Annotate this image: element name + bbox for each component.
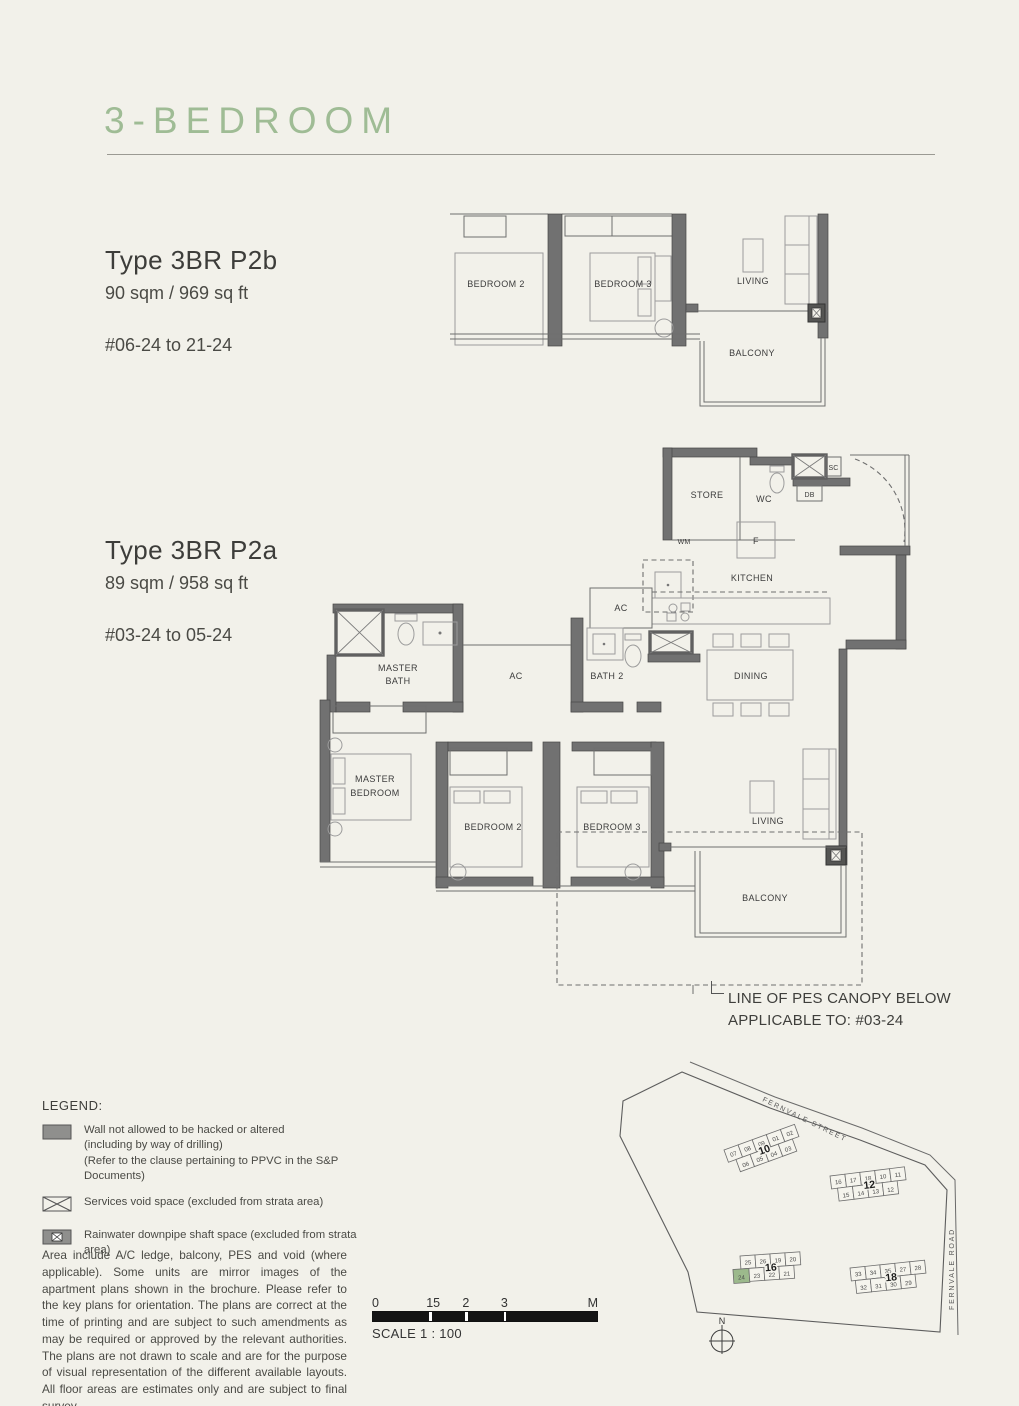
scale-tick-1: 15 (426, 1296, 440, 1310)
page-title: 3-BEDROOM (104, 100, 400, 142)
label-living: LIVING (752, 816, 784, 826)
washing-machine (643, 560, 693, 612)
pes-canopy-line (557, 832, 862, 994)
label-master-bath-1: MASTER (378, 663, 418, 673)
services-void-icon (42, 1196, 72, 1217)
type-p2a-area: 89 sqm / 958 sq ft (105, 573, 277, 594)
svg-text:33: 33 (855, 1272, 863, 1279)
scale-tick-m: M (588, 1296, 598, 1310)
label-ac-corridor: AC (509, 671, 522, 681)
type-p2b-units: #06-24 to 21-24 (105, 335, 277, 356)
bath2-basin (587, 628, 623, 660)
rainwater-downpipe-icon (808, 304, 825, 322)
bed-bedroom2 (450, 787, 522, 880)
svg-text:24: 24 (738, 1275, 746, 1281)
label-bedroom2: BEDROOM 2 (464, 822, 522, 832)
svg-text:FERNVALE ROAD: FERNVALE ROAD (949, 1228, 956, 1310)
label-bedroom3: BEDROOM 3 (594, 279, 652, 289)
type-p2a-name: Type 3BR P2a (105, 535, 277, 566)
label-master-bedroom-1: MASTER (355, 774, 395, 784)
pes-leader-bracket (711, 981, 724, 994)
svg-text:21: 21 (783, 1272, 791, 1278)
type-p2a-info: Type 3BR P2a 89 sqm / 958 sq ft #03-24 t… (105, 535, 277, 646)
scale-tick-2: 2 (462, 1296, 469, 1310)
block-number-12: 12 (863, 1179, 876, 1192)
pes-note-line1: LINE OF PES CANOPY BELOW (728, 988, 951, 1010)
svg-text:32: 32 (860, 1285, 868, 1292)
svg-text:23: 23 (753, 1274, 761, 1280)
sofa-living (785, 216, 817, 304)
svg-text:29: 29 (905, 1281, 913, 1288)
label-master-bath-2: BATH (386, 676, 411, 686)
block-number-16: 16 (765, 1261, 778, 1274)
north-label: N (719, 1316, 726, 1326)
label-fridge: F (753, 536, 759, 546)
legend-heading: LEGEND: (42, 1098, 372, 1113)
svg-text:34: 34 (870, 1270, 878, 1277)
site-block-18: 33 34 35 27 28 32 31 30 29 18 (850, 1260, 927, 1294)
label-bedroom3: BEDROOM 3 (583, 822, 641, 832)
svg-text:20: 20 (789, 1257, 797, 1263)
bed-master (328, 738, 411, 836)
wc-toilet (770, 466, 784, 493)
legend: LEGEND: Wall not allowed to be hacked or… (42, 1098, 372, 1270)
floor-plan-p2a: SC DB STORE WC WM F KITCHEN AC (315, 440, 915, 1003)
coffee-table (743, 239, 763, 272)
label-db: DB (804, 492, 814, 499)
scale-ticks: 0 15 2 3 M (372, 1296, 598, 1311)
bed-bedroom2 (455, 253, 543, 345)
services-void-box-bath2 (650, 632, 692, 653)
scale-tick-3: 3 (501, 1296, 508, 1310)
svg-text:27: 27 (899, 1267, 907, 1274)
master-bath-basin (423, 622, 457, 645)
type-p2b-info: Type 3BR P2b 90 sqm / 969 sq ft #06-24 t… (105, 245, 277, 356)
label-master-bedroom-2: BEDROOM (350, 788, 399, 798)
svg-text:31: 31 (875, 1284, 883, 1291)
wardrobe-hatch-bedroom3 (612, 216, 673, 236)
bath2-toilet (625, 634, 641, 667)
bench-bedroom3 (655, 256, 671, 301)
rainwater-downpipe-icon (826, 846, 846, 865)
label-store: STORE (691, 490, 724, 500)
legend-wall-line1: Wall not allowed to be hacked or altered (84, 1123, 372, 1138)
scale-caption: SCALE 1 : 100 (372, 1326, 598, 1341)
floor-plan-p2b: BEDROOM 2 BEDROOM 3 LIVING BALCONY (450, 196, 850, 436)
label-wc: WC (756, 494, 772, 504)
services-void-box-sc (793, 455, 826, 478)
label-balcony: BALCONY (742, 893, 788, 903)
road-edge (690, 1062, 958, 1335)
wardrobe-hatch-bedroom3 (594, 748, 651, 775)
sofa-living (803, 749, 836, 839)
label-kitchen: KITCHEN (731, 573, 773, 583)
label-dining: DINING (734, 671, 768, 681)
site-block-12: 16 17 18 10 11 15 14 13 12 12 (830, 1167, 908, 1202)
scale-tick-0: 0 (372, 1296, 379, 1310)
kitchen-counter (652, 592, 830, 624)
label-wm: WM (678, 539, 691, 546)
type-p2b-area: 90 sqm / 969 sq ft (105, 283, 277, 304)
label-sc: SC (828, 465, 838, 472)
svg-text:28: 28 (914, 1265, 922, 1272)
wardrobe-hatch-bedroom2 (450, 748, 507, 775)
site-block-16: 25 26 19 20 24 23 22 21 16 (732, 1252, 802, 1284)
site-plan: FERNVALE STREET FERNVALE ROAD 07 08 09 0… (612, 1058, 1017, 1373)
legend-item-services-void: Services void space (excluded from strat… (42, 1195, 372, 1217)
bed-bedroom3 (577, 787, 649, 880)
label-living: LIVING (737, 276, 769, 286)
svg-text:25: 25 (744, 1260, 752, 1266)
legend-wall-line3: (Refer to the clause pertaining to PPVC … (84, 1154, 372, 1185)
wardrobe-hatch-bedroom2 (464, 216, 506, 237)
street-label-fernvale-road: FERNVALE ROAD (949, 1228, 956, 1310)
scale-bar: 0 15 2 3 M SCALE 1 : 100 (372, 1296, 598, 1341)
coffee-table (750, 781, 774, 813)
pes-note: LINE OF PES CANOPY BELOW APPLICABLE TO: … (728, 988, 951, 1032)
disclaimer-text: Area include A/C ledge, balcony, PES and… (42, 1247, 347, 1406)
type-p2b-name: Type 3BR P2b (105, 245, 277, 276)
label-bedroom2: BEDROOM 2 (467, 279, 525, 289)
entry-door-arc (855, 459, 905, 542)
legend-wall-line2: (including by way of drilling) (84, 1138, 372, 1153)
block-number-18: 18 (885, 1271, 898, 1284)
label-bath2: BATH 2 (590, 671, 623, 681)
legend-item-wall: Wall not allowed to be hacked or altered… (42, 1123, 372, 1184)
brochure-page: 3-BEDROOM Type 3BR P2b 90 sqm / 969 sq f… (0, 0, 1019, 1406)
label-balcony: BALCONY (729, 348, 775, 358)
type-p2a-units: #03-24 to 05-24 (105, 625, 277, 646)
wall-swatch-icon (42, 1124, 72, 1145)
north-compass-icon: N (709, 1316, 735, 1354)
title-rule (107, 154, 935, 155)
shower-box (336, 610, 383, 655)
pes-note-line2: APPLICABLE TO: #03-24 (728, 1010, 951, 1032)
master-bath-toilet (395, 614, 417, 645)
legend-services-void-text: Services void space (excluded from strat… (84, 1195, 323, 1210)
site-block-10: 07 08 09 01 02 06 05 04 03 10 (724, 1124, 803, 1174)
scale-bar-strip (372, 1311, 598, 1322)
label-ac-kitchen: AC (614, 603, 627, 613)
